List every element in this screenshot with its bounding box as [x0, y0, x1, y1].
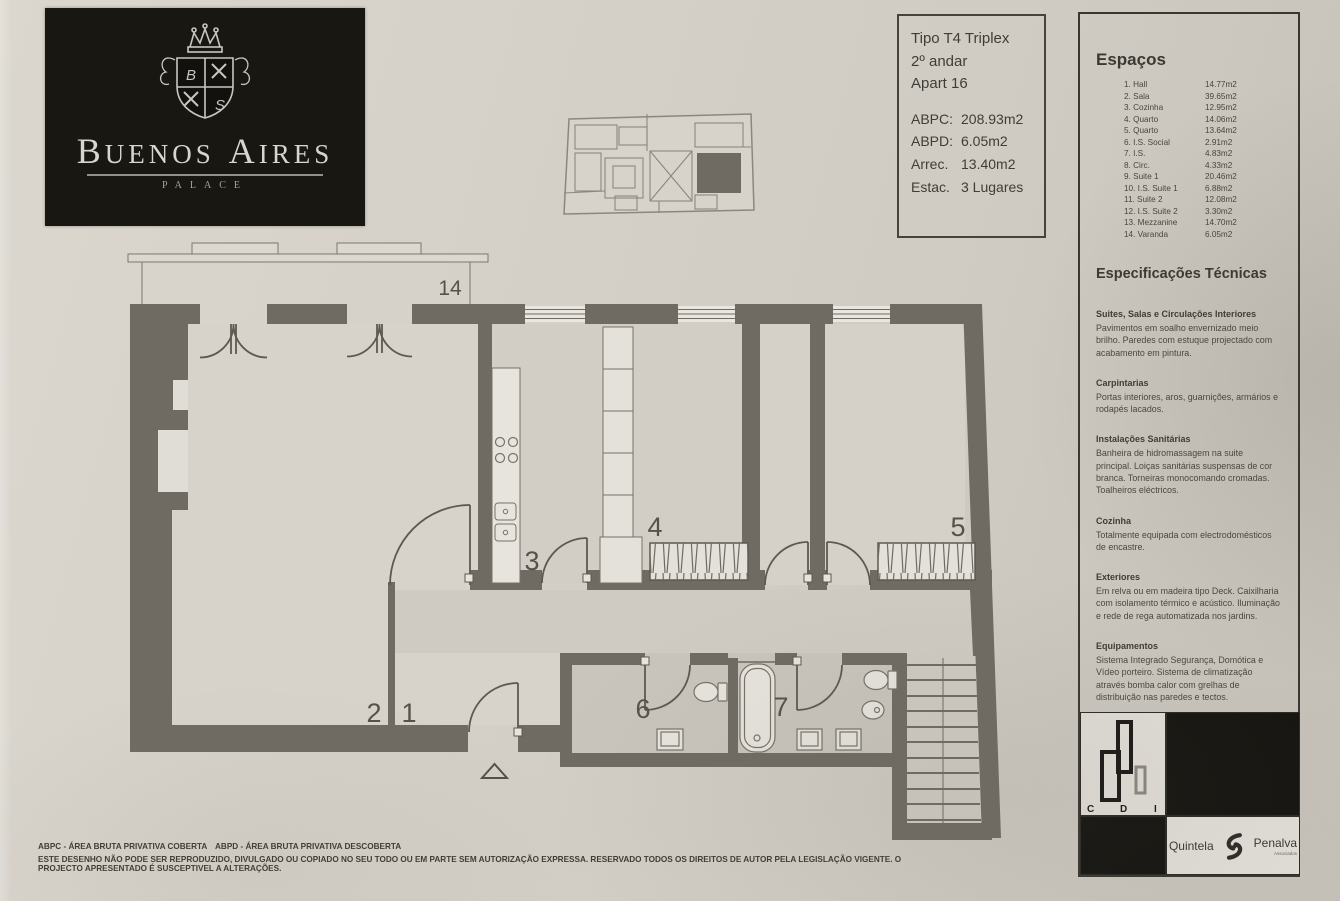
spaces-list: 1. Hall14.77m2 2. Sala39.65m2 3. Cozinha…	[1124, 80, 1298, 241]
room-label-sala: 2	[366, 698, 381, 728]
buenos-aires-logo: B S BuenosAires PALACE	[45, 8, 365, 226]
agency-subtitle: Associados	[1274, 851, 1297, 856]
abpd-definition: ABPD - ÁREA BRUTA PRIVATIVA DESCOBERTA	[215, 842, 401, 851]
room-label-is: 7	[773, 692, 788, 722]
footer: ABPC - ÁREA BRUTA PRIVATIVA COBERTA ABPD…	[38, 842, 948, 873]
metric-row: ABPC:208.93m2	[911, 108, 1044, 131]
metric-row: Estac.3 Lugares	[911, 176, 1044, 199]
room-label-quarto4: 4	[647, 512, 662, 542]
spec-body: Portas interiores, aros, guarnições, arm…	[1096, 391, 1280, 416]
spec-heading: Cozinha	[1096, 516, 1280, 526]
bedroom5-wardrobe	[878, 543, 975, 580]
room-label-quarto5: 5	[950, 512, 965, 542]
crest-letter: S	[215, 97, 225, 114]
unit-apartment: Apart 16	[911, 73, 1044, 96]
entrance-marker-icon	[482, 764, 507, 778]
brand-black-block	[1080, 816, 1166, 875]
space-row: 11. Suite 212.08m2	[1124, 195, 1298, 207]
bedroom4-window	[678, 306, 735, 322]
metric-row: ABPD:6.05m2	[911, 130, 1044, 153]
space-row: 8. Circ.4.33m2	[1124, 161, 1298, 173]
spec-heading: Instalações Sanitárias	[1096, 434, 1280, 444]
space-row: 6. I.S. Social2.91m2	[1124, 138, 1298, 150]
copyright-notice: ESTE DESENHO NÃO PODE SER REPRODUZIDO, D…	[38, 855, 948, 873]
bath6-sink	[657, 729, 683, 750]
unit-type: Tipo T4 Triplex	[911, 28, 1044, 51]
brand-subtitle: PALACE	[45, 180, 365, 191]
crest-icon: B S	[120, 18, 290, 130]
agency-name-2: Penalva	[1254, 836, 1297, 850]
spec-body: Pavimentos em soalho envernizado meio br…	[1096, 322, 1280, 359]
spec-section: Equipamentos Sistema Integrado Segurança…	[1096, 641, 1280, 703]
spec-section: Cozinha Totalmente equipada com electrod…	[1096, 516, 1280, 554]
brand-rule	[87, 174, 323, 176]
bedroom4-wardrobe	[650, 543, 748, 580]
spec-body: Sistema Integrado Segurança, Domótica e …	[1096, 654, 1280, 703]
room-label-varanda: 14	[438, 277, 462, 300]
quintela-penalva-logo: Quintela Penalva Associados	[1166, 816, 1300, 875]
unit-info-box: Tipo T4 Triplex 2º andar Apart 16 ABPC:2…	[897, 14, 1046, 238]
spec-heading: Exteriores	[1096, 572, 1280, 582]
kitchen-window	[525, 306, 585, 322]
cdi-letter-d: D	[1120, 804, 1127, 815]
cdi-logo: C D I	[1080, 712, 1166, 816]
space-row: 3. Cozinha12.95m2	[1124, 103, 1298, 115]
specs-title: Especificações Técnicas	[1096, 266, 1298, 282]
room-label-is-social: 6	[635, 694, 650, 724]
room-label-cozinha: 3	[524, 546, 539, 576]
crest-letter: B	[186, 67, 196, 84]
unit-floor: 2º andar	[911, 51, 1044, 74]
abpc-definition: ABPC - ÁREA BRUTA PRIVATIVA COBERTA	[38, 842, 215, 851]
spec-body: Banheira de hidromassagem na suite princ…	[1096, 447, 1280, 496]
spec-heading: Carpintarias	[1096, 378, 1280, 388]
key-plan	[555, 103, 767, 225]
agency-name-1: Quintela	[1169, 839, 1214, 853]
space-row: 7. I.S.4.83m2	[1124, 149, 1298, 161]
brand-word-1: Buenos	[77, 130, 215, 172]
space-row: 4. Quarto14.06m2	[1124, 115, 1298, 127]
spec-body: Totalmente equipada com electrodoméstico…	[1096, 529, 1280, 554]
space-row: 12. I.S. Suite 23.30m2	[1124, 207, 1298, 219]
space-row: 13. Mezzanine14.70m2	[1124, 218, 1298, 230]
spec-section: Instalações Sanitárias Banheira de hidro…	[1096, 434, 1280, 496]
metric-row: Arrec.13.40m2	[911, 153, 1044, 176]
spec-section: Carpintarias Portas interiores, aros, gu…	[1096, 378, 1280, 416]
space-row: 2. Sala39.65m2	[1124, 92, 1298, 104]
space-row: 9. Suite 120.46m2	[1124, 172, 1298, 184]
space-row: 5. Quarto13.64m2	[1124, 126, 1298, 138]
brand-title: BuenosAires	[45, 130, 365, 172]
bathtub	[740, 664, 775, 752]
cdi-letter-i: I	[1154, 804, 1157, 815]
scanned-floorplan-sheet: B S BuenosAires PALACE Tipo T4 Tri	[0, 0, 1340, 901]
windows	[525, 306, 890, 322]
spec-body: Em relva ou em madeira tipo Deck. Caixil…	[1096, 585, 1280, 622]
cdi-letter-c: C	[1087, 804, 1094, 815]
floor-plan: 14 2 1 3 4 5 6 7	[120, 240, 1010, 840]
space-row: 1. Hall14.77m2	[1124, 80, 1298, 92]
spec-heading: Suites, Salas e Circulações Interiores	[1096, 309, 1280, 319]
bedroom5-window	[833, 306, 890, 322]
brand-word-2: Aires	[229, 130, 334, 172]
unit-metrics: ABPC:208.93m2 ABPD:6.05m2 Arrec.13.40m2 …	[911, 108, 1044, 199]
bath7-bidet	[862, 701, 884, 719]
balcony	[128, 243, 488, 304]
spaces-title: Espaços	[1096, 50, 1298, 70]
room-label-hall: 1	[401, 698, 416, 728]
spec-section: Exteriores Em relva ou em madeira tipo D…	[1096, 572, 1280, 622]
brand-black-block	[1166, 712, 1300, 816]
key-plan-unit-highlight	[697, 153, 741, 193]
agency-swirl-icon	[1219, 828, 1249, 864]
bath7-toilet	[864, 671, 897, 690]
space-row: 14. Varanda6.05m2	[1124, 230, 1298, 242]
spec-heading: Equipamentos	[1096, 641, 1280, 651]
space-row: 10. I.S. Suite 16.88m2	[1124, 184, 1298, 196]
spec-section: Suites, Salas e Circulações Interiores P…	[1096, 309, 1280, 359]
bath6-toilet	[694, 683, 727, 702]
branding-block: C D I Quintela Penalva Associados	[1080, 712, 1300, 875]
